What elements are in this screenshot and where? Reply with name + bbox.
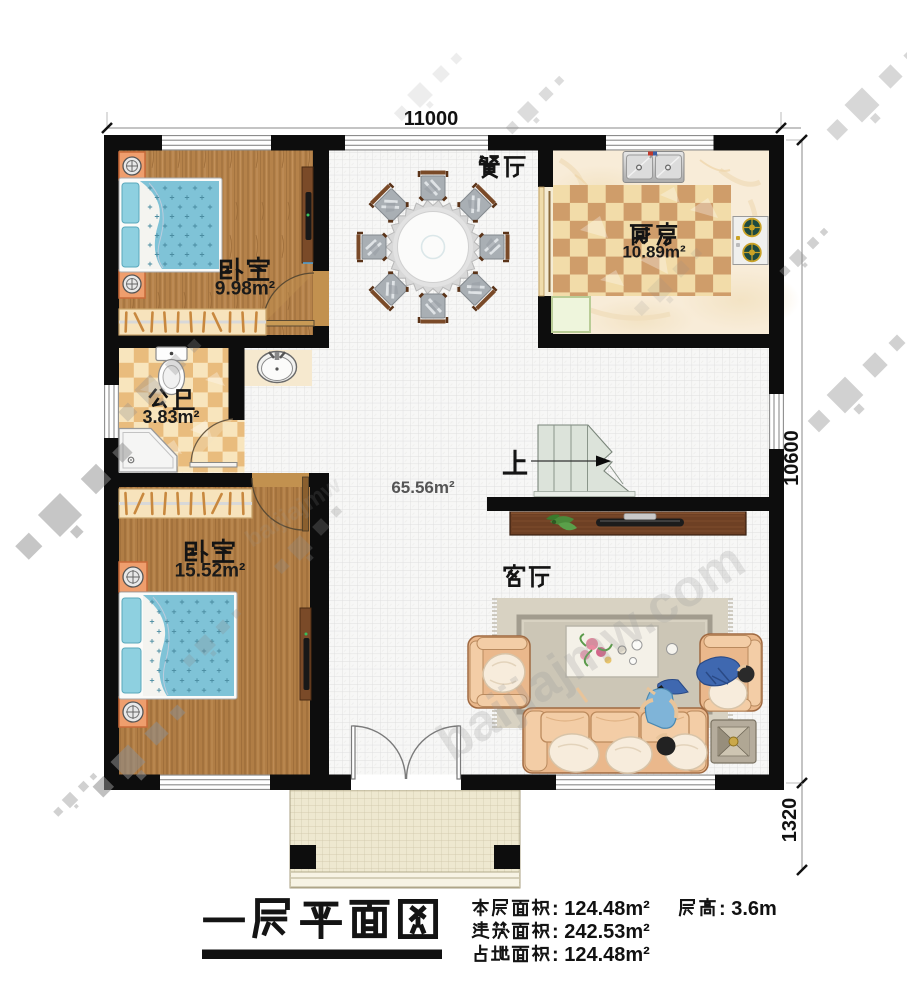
svg-text:3.83m²: 3.83m² [142, 407, 199, 427]
svg-text:: 124.48m²: : 124.48m² [552, 944, 650, 966]
svg-text:65.56m²: 65.56m² [391, 478, 455, 497]
svg-text:: 3.6m: : 3.6m [719, 898, 777, 920]
svg-text:10.89m²: 10.89m² [622, 243, 686, 262]
svg-text:10600: 10600 [781, 430, 803, 486]
svg-text:: 124.48m²: : 124.48m² [552, 898, 650, 920]
svg-text:1320: 1320 [779, 798, 801, 843]
svg-text:11000: 11000 [404, 108, 459, 130]
svg-text:: 242.53m²: : 242.53m² [552, 921, 650, 943]
svg-text:15.52m²: 15.52m² [175, 560, 246, 581]
svg-text:9.98m²: 9.98m² [215, 278, 275, 299]
